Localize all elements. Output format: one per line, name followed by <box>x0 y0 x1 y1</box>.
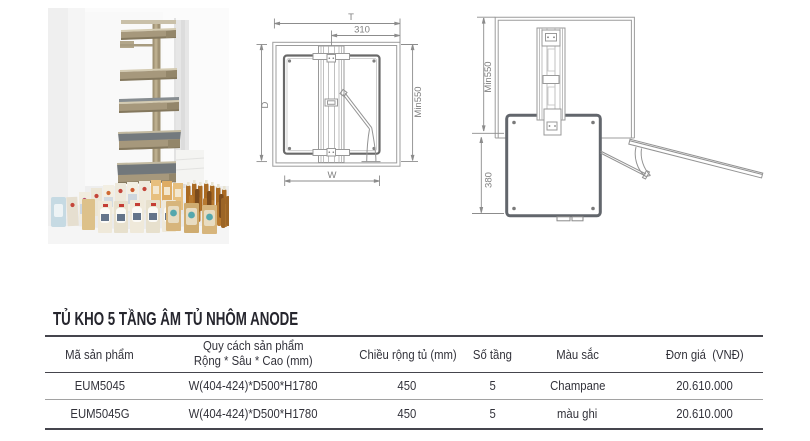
svg-text:Min550: Min550 <box>413 86 424 117</box>
svg-text:D: D <box>260 101 271 108</box>
svg-text:310: 310 <box>354 25 370 36</box>
svg-text:W: W <box>328 170 337 181</box>
svg-text:Min550: Min550 <box>483 61 494 92</box>
svg-text:380: 380 <box>484 172 495 188</box>
svg-text:T: T <box>348 12 354 23</box>
